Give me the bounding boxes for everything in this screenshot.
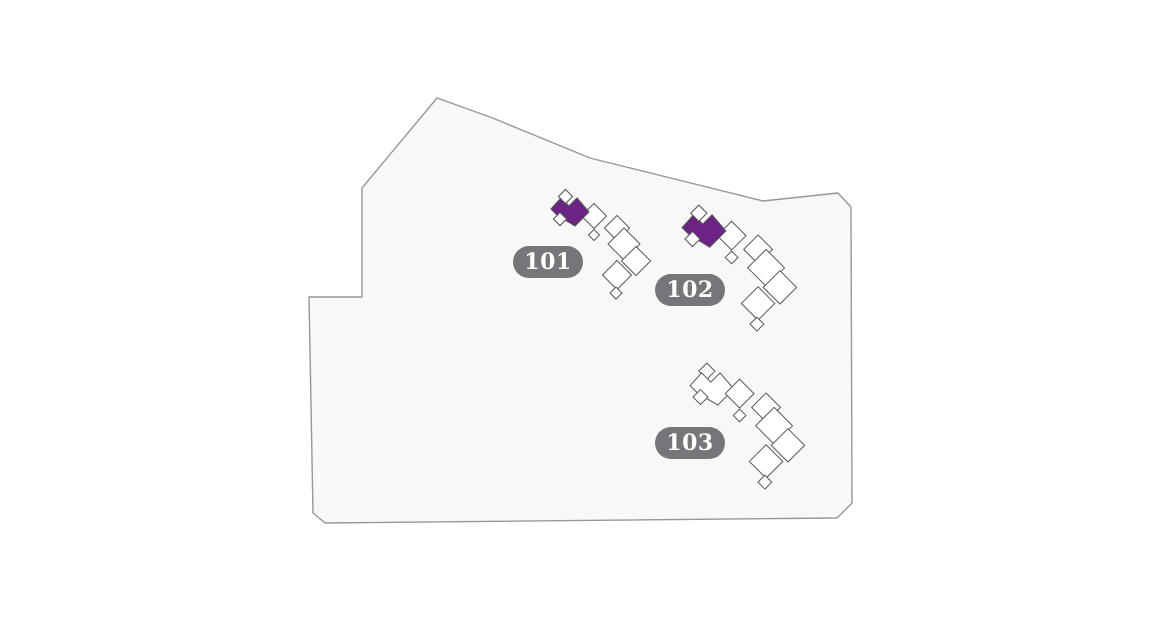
building-label-text: 102 — [666, 277, 713, 303]
site-map-svg — [0, 0, 1160, 640]
building-label-102[interactable]: 102 — [655, 274, 725, 306]
building-label-101[interactable]: 101 — [513, 246, 583, 278]
building-label-103[interactable]: 103 — [655, 427, 725, 459]
site-plan-map: 101 102 103 — [0, 0, 1160, 640]
building-label-text: 103 — [666, 430, 713, 456]
building-label-text: 101 — [524, 249, 571, 275]
